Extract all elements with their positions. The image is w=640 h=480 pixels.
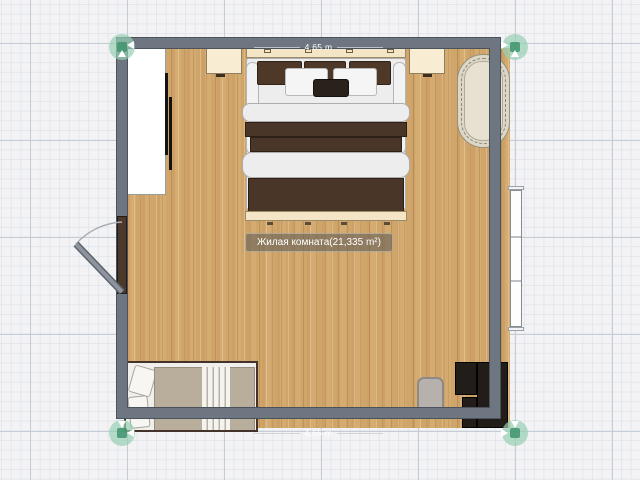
room-walls[interactable] bbox=[117, 38, 500, 418]
resize-arrow-icon[interactable] bbox=[501, 41, 508, 49]
resize-arrow-icon[interactable] bbox=[118, 50, 126, 57]
resize-arrow-icon[interactable] bbox=[511, 50, 519, 57]
room-label[interactable]: Жилая комната(21,335 m²) bbox=[245, 233, 393, 252]
resize-arrow-icon[interactable] bbox=[511, 421, 519, 428]
door-swing bbox=[58, 183, 130, 301]
window-sill bbox=[508, 327, 524, 331]
resize-arrow-icon[interactable] bbox=[127, 41, 134, 49]
dimension-tick bbox=[254, 433, 300, 434]
dimension-tick bbox=[337, 47, 383, 48]
window-divider bbox=[511, 280, 521, 282]
dimension-text-bottom: 4,65 m bbox=[305, 428, 333, 438]
dimension-label-top: 4,65 m bbox=[117, 42, 520, 52]
plan-canvas: 4,65 m 4,65 m Жилая комната(21,335 m²) bbox=[0, 0, 640, 480]
dimension-label-bottom: 4,65 m bbox=[117, 428, 520, 438]
dimension-text-top: 4,65 m bbox=[305, 42, 333, 52]
resize-arrow-icon[interactable] bbox=[127, 429, 134, 437]
dimension-tick bbox=[337, 433, 383, 434]
dimension-tick bbox=[254, 47, 300, 48]
resize-arrow-icon[interactable] bbox=[501, 429, 508, 437]
window-divider bbox=[511, 236, 521, 238]
window[interactable] bbox=[510, 190, 522, 327]
resize-arrow-icon[interactable] bbox=[118, 421, 126, 428]
